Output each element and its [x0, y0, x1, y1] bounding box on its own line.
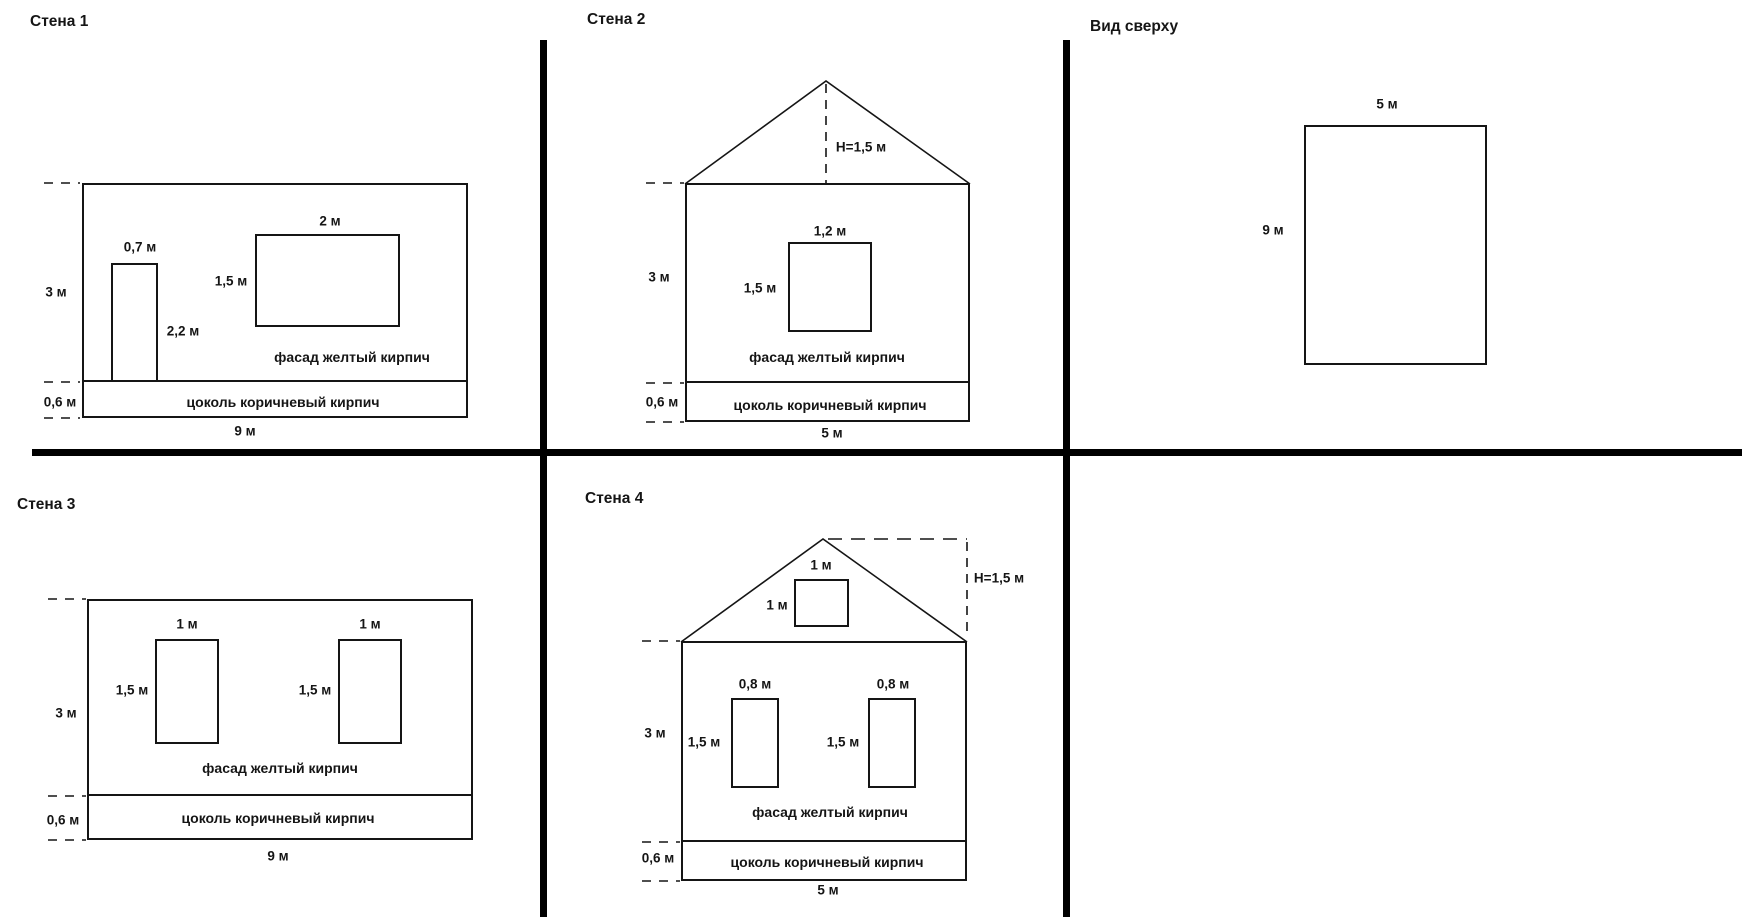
wall4-wall-height-label: 3 м	[644, 726, 665, 741]
wall1-wall-height-label: 3 м	[45, 285, 66, 300]
wall4-window1-rect	[731, 698, 779, 788]
wall1-wall-width-label: 9 м	[234, 424, 255, 439]
top-view-plan-rect	[1304, 125, 1487, 365]
wall1-plinth-caption: цоколь коричневый кирпич	[187, 394, 380, 410]
wall1-window-rect	[255, 234, 400, 327]
wall3-facade-caption: фасад желтый кирпич	[202, 760, 358, 776]
wall2-wall-height-label: 3 м	[648, 270, 669, 285]
wall3-wall-width-label: 9 м	[267, 849, 288, 864]
wall3-title: Стена 3	[17, 496, 75, 514]
wall4-facade-caption: фасад желтый кирпич	[752, 804, 908, 820]
wall3-plinth-height-label: 0,6 м	[47, 813, 80, 828]
wall1-door-width-label: 0,7 м	[124, 240, 157, 255]
wall2-title: Стена 2	[587, 11, 645, 29]
wall2-roof-line	[685, 81, 970, 184]
wall3-window1-height-label: 1,5 м	[116, 683, 149, 698]
wall3-wall-height-label: 3 м	[55, 706, 76, 721]
wall4-window1-width-label: 0,8 м	[739, 677, 772, 692]
wall1-window-height-label: 1,5 м	[215, 274, 248, 289]
wall2-window-width-label: 1,2 м	[814, 224, 847, 239]
wall2-plinth-height-label: 0,6 м	[646, 395, 679, 410]
wall3-window2-width-label: 1 м	[359, 617, 380, 632]
wall2-wall-width-label: 5 м	[821, 426, 842, 441]
wall4-plinth-caption: цоколь коричневый кирпич	[731, 854, 924, 870]
wall1-facade-caption: фасад желтый кирпич	[274, 349, 430, 365]
wall2-window-rect	[788, 242, 872, 332]
wall1-door-rect	[111, 263, 158, 382]
wall1-title: Стена 1	[30, 13, 88, 31]
wall2-plinth-caption: цоколь коричневый кирпич	[734, 397, 927, 413]
top-view-width-label: 5 м	[1376, 97, 1397, 112]
wall4-gable-window-rect	[794, 579, 849, 627]
wall4-gable-window-height-label: 1 м	[766, 598, 787, 613]
wall1-window-width-label: 2 м	[319, 214, 340, 229]
drawing-canvas: Стена 1 0,7 м 2,2 м 2 м 1,5 м 3 м 0,6 м …	[0, 0, 1742, 917]
wall2-facade-caption: фасад желтый кирпич	[749, 349, 905, 365]
wall4-window1-height-label: 1,5 м	[688, 735, 721, 750]
wall4-window2-width-label: 0,8 м	[877, 677, 910, 692]
wall2-roof-height-label: Н=1,5 м	[836, 140, 886, 155]
wall3-window2-height-label: 1,5 м	[299, 683, 332, 698]
wall4-window2-height-label: 1,5 м	[827, 735, 860, 750]
wall3-plinth-caption: цоколь коричневый кирпич	[182, 810, 375, 826]
wall4-roof-height-label: Н=1,5 м	[974, 571, 1024, 586]
wall4-gable-window-width-label: 1 м	[810, 558, 831, 573]
wall3-window2-rect	[338, 639, 402, 744]
wall2-window-height-label: 1,5 м	[744, 281, 777, 296]
wall4-window2-rect	[868, 698, 916, 788]
wall4-plinth-height-label: 0,6 м	[642, 851, 675, 866]
wall1-door-height-label: 2,2 м	[167, 324, 200, 339]
top-view-depth-label: 9 м	[1262, 223, 1283, 238]
wall3-window1-rect	[155, 639, 219, 744]
top-view-title: Вид сверху	[1090, 18, 1178, 36]
wall3-window1-width-label: 1 м	[176, 617, 197, 632]
wall4-title: Стена 4	[585, 490, 643, 508]
wall1-plinth-height-label: 0,6 м	[44, 395, 77, 410]
wall4-wall-width-label: 5 м	[817, 883, 838, 898]
